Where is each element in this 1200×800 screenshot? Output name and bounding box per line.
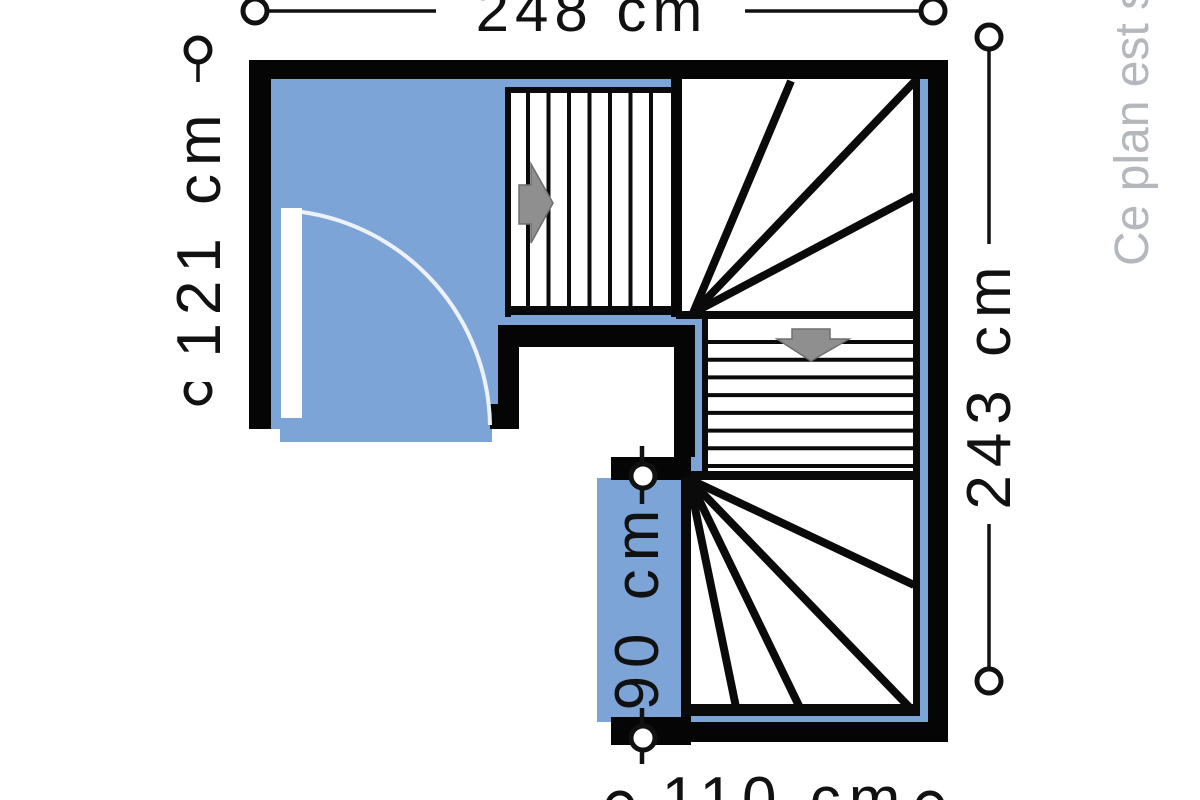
svg-text:121 cm: 121 cm <box>165 106 234 357</box>
svg-text:110 cm: 110 cm <box>662 765 909 800</box>
svg-text:248 cm: 248 cm <box>476 0 709 44</box>
svg-text:243 cm: 243 cm <box>955 258 1024 509</box>
svg-text:90 cm: 90 cm <box>603 502 672 711</box>
svg-text:Ce plan est soumis: Ce plan est soumis <box>1106 0 1159 266</box>
